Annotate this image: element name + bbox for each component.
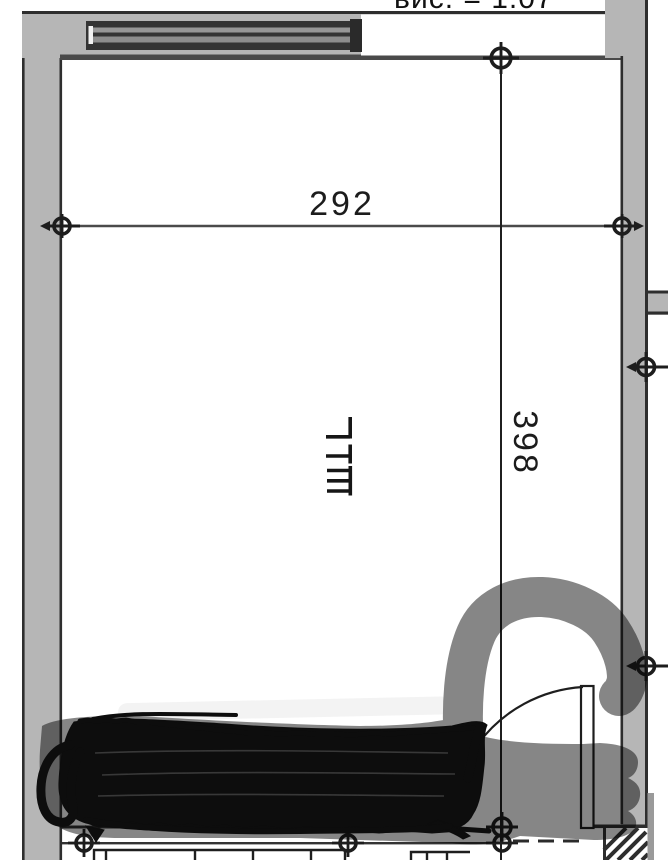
svg-text:398: 398 — [506, 410, 544, 476]
svg-text:292: 292 — [309, 185, 375, 223]
svg-text:вис. = 1.07: вис. = 1.07 — [394, 0, 554, 15]
